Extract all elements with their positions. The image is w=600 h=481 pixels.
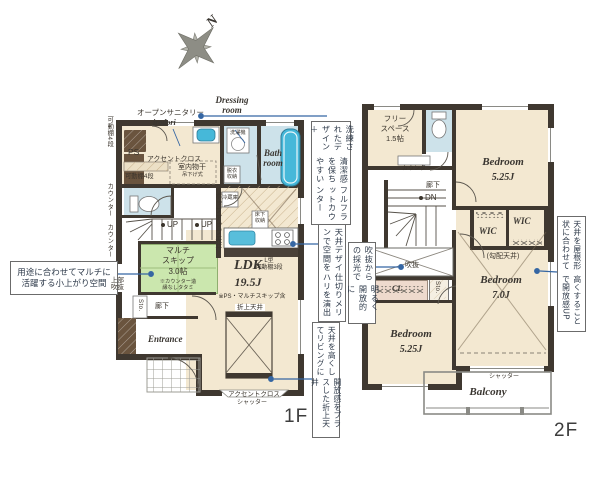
annotation-line: 開放感をプラスした折上天井 bbox=[309, 378, 343, 434]
annotation-line: 活躍する小上がり空間 bbox=[21, 278, 106, 289]
counter-side2-label: カウンター bbox=[106, 224, 113, 258]
annotation-line: フルフラットカウンター bbox=[313, 186, 349, 221]
annotation-line: 吹抜からの採光で bbox=[350, 246, 374, 285]
floor2-label: 2F bbox=[554, 420, 578, 442]
dressing-storage-label: 脱衣収納 bbox=[226, 169, 238, 181]
annotation-line: 明るく開放的に bbox=[344, 285, 380, 320]
irodori-label: irodori bbox=[153, 118, 176, 127]
underfloor-label: 床下収納 bbox=[254, 213, 266, 225]
folded-ceiling-marker bbox=[226, 312, 272, 378]
balcony-label: Balcony bbox=[456, 386, 520, 399]
shelf4-side-label: 可動棚4段 bbox=[106, 116, 113, 147]
annotation-line: 天井を屋根形状に合わせて bbox=[560, 220, 583, 275]
bath-room-label: Bath room bbox=[260, 148, 286, 169]
free-space-line2: スペース bbox=[380, 124, 409, 133]
annotation-counter: 洗練されたデザイン＋ 清潔感を保ちやすい フルフラットカウンター bbox=[311, 121, 351, 225]
porch-tiles bbox=[147, 358, 200, 392]
fridge-label: 冷蔵庫 bbox=[222, 196, 238, 202]
multi-sub2: 縁なしタタミ bbox=[162, 285, 193, 291]
sto-2f-label: Sto. bbox=[433, 281, 440, 294]
counter-2f-label: カウンター bbox=[402, 166, 432, 173]
shutter-1f-label: シャッター bbox=[226, 400, 278, 407]
free-space-line3: 1.5帖 bbox=[386, 134, 404, 143]
bedroom-bl-size-label: 5.25J bbox=[380, 344, 442, 356]
free-space-label: フリー スペース 1.5帖 bbox=[368, 114, 422, 144]
counter-side1-label: カウンター bbox=[106, 183, 113, 217]
cl-label: CL bbox=[392, 284, 402, 293]
wic1-rail bbox=[476, 212, 504, 218]
annotation-folded-ceiling: 天井を高くしてリビングに 開放感をプラスした折上天井 bbox=[312, 322, 340, 438]
ldk-size-label: 19.5J bbox=[220, 276, 276, 290]
folded-ceiling-label: 折上天井 bbox=[235, 304, 265, 311]
open-sanitary-label: オープンサニタリー bbox=[137, 109, 204, 118]
shelf4-label: 可動棚4段 bbox=[125, 173, 154, 180]
dn-label: DN bbox=[425, 193, 437, 202]
wic2-label: WIC bbox=[513, 216, 531, 226]
multi-skip-label: マルチ スキップ 3.0帖 bbox=[140, 246, 216, 277]
annotation-line: 高くすることで開放感UP bbox=[560, 275, 583, 328]
void-label: 吹抜 bbox=[405, 262, 419, 270]
up1-label: UP bbox=[167, 220, 178, 229]
washbasin bbox=[193, 127, 219, 143]
bedroom-r-label: Bedroom bbox=[470, 274, 532, 287]
multi-line1: マルチ bbox=[166, 246, 190, 255]
shutter-2f-label: シャッター bbox=[478, 374, 530, 381]
annotation-line: 仕切りメリハリを演出 bbox=[320, 273, 344, 318]
multi-line3: 3.0帖 bbox=[168, 267, 187, 276]
accent-cloth-bottom-label: アクセントクロス bbox=[218, 391, 290, 398]
popup-ceiling-label: ポップアップ天井 bbox=[213, 192, 221, 250]
ps-label: PS bbox=[128, 148, 139, 158]
floor-plan-page: 用途に合わせてマルチに 活躍する小上がり空間 洗練されたデザイン＋ 清潔感を保ち… bbox=[0, 0, 600, 481]
annotation-line: 天井デザインで空間を bbox=[320, 228, 344, 273]
annotation-line: 洗練されたデザイン＋ bbox=[307, 125, 355, 157]
up2-label: UP bbox=[201, 220, 212, 229]
ldk-label: LDK bbox=[220, 258, 276, 274]
toilet-2f-fixture bbox=[432, 112, 446, 138]
free-space-line1: フリー bbox=[384, 114, 407, 123]
kitchen-counter bbox=[224, 228, 298, 257]
indoor-drying-sub-label: 吊下げ式 bbox=[182, 173, 203, 179]
washer-label: 洗濯機 bbox=[230, 131, 246, 137]
counter-2f-box bbox=[398, 156, 430, 165]
multi-line2: スキップ bbox=[162, 256, 194, 265]
dressing-room-label: Dressing room bbox=[206, 95, 258, 116]
bedroom-r-size-label: 7.0J bbox=[470, 290, 532, 302]
bedroom-tr-label: Bedroom bbox=[472, 156, 534, 169]
annotation-ceiling-design: 天井デザインで空間を 仕切りメリハリを演出 bbox=[318, 224, 346, 322]
hallway-1f-label: 廊下 bbox=[155, 303, 169, 311]
annotation-void-light: 吹抜からの採光で 明るく開放的に bbox=[348, 242, 376, 324]
annotation-line: 清潔感を保ちやすい bbox=[313, 157, 349, 186]
annotation-line: 天井を高くしてリビングに bbox=[315, 326, 338, 378]
hallway-2f-label: 廊下 bbox=[426, 182, 440, 190]
annotation-line: 用途に合わせてマルチに bbox=[17, 267, 111, 278]
bedroom-bl-label: Bedroom bbox=[380, 328, 442, 341]
annotation-multi-skip: 用途に合わせてマルチに 活躍する小上がり空間 bbox=[10, 261, 118, 295]
floor1-label: 1F bbox=[284, 406, 308, 428]
sloped-ceiling-label: (勾配天井) bbox=[474, 253, 532, 261]
stairs-2f bbox=[388, 190, 446, 246]
bedroom-tr-size-label: 5.25J bbox=[472, 172, 534, 184]
ldk-note-label: ※PS・マルチスキップ含 bbox=[212, 294, 292, 301]
wic1-label: WIC bbox=[479, 226, 497, 236]
annotation-roof-ceiling: 天井を屋根形状に合わせて 高くすることで開放感UP bbox=[557, 216, 586, 332]
multi-skip-sub-label: ※カウンター造 縁なしタタミ bbox=[140, 279, 216, 291]
upper-void-label: 上部吹抜 bbox=[110, 277, 125, 292]
indoor-drying-label: 室内物干 bbox=[178, 164, 206, 172]
entrance-label: Entrance bbox=[148, 334, 183, 344]
accent-cloth-top-label: アクセントクロス bbox=[147, 156, 201, 164]
sto-1f-label: Sto. bbox=[136, 299, 143, 312]
